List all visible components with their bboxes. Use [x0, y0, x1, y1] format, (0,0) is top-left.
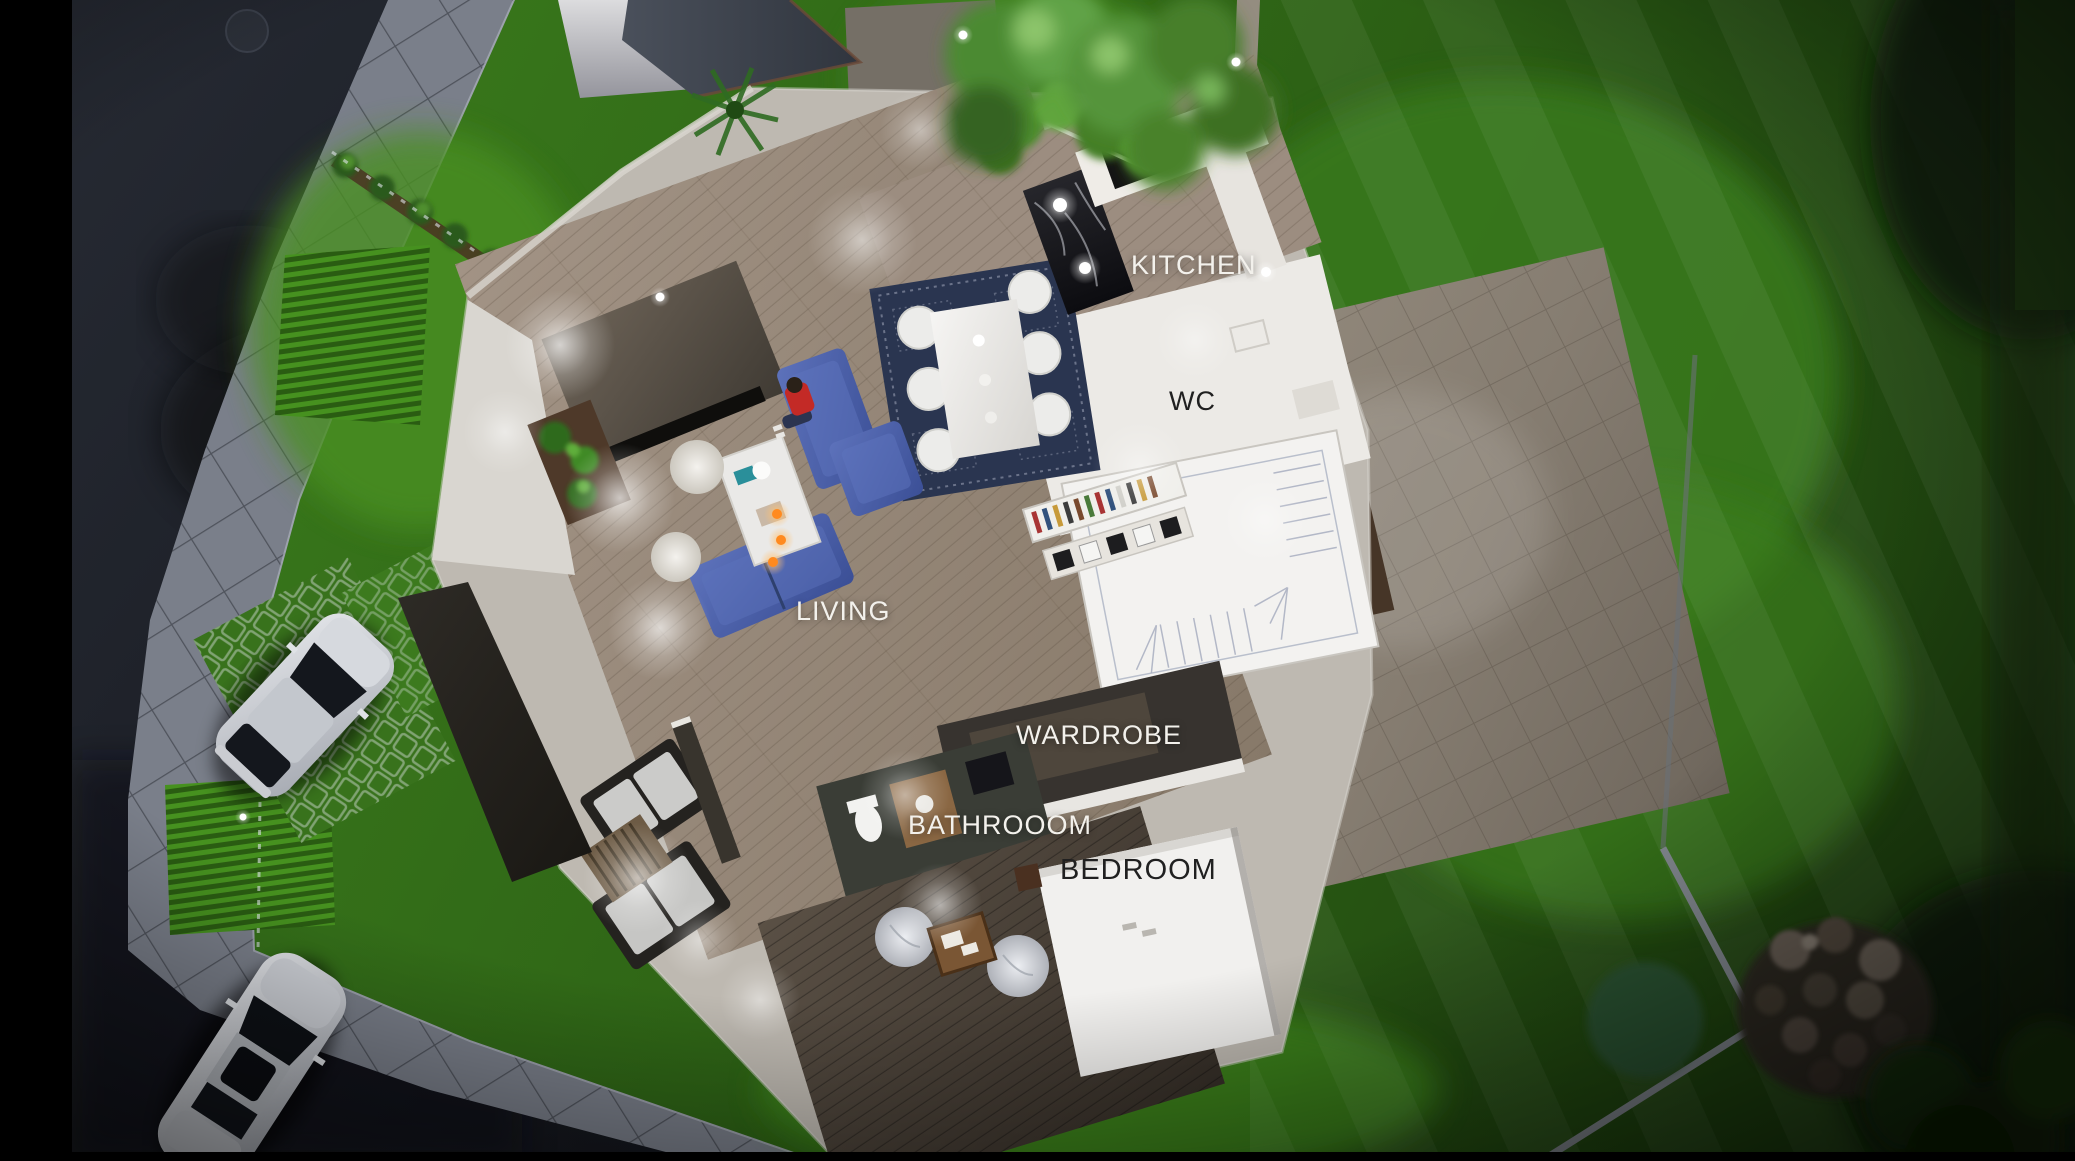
room-label-bedroom: BEDROOM	[1060, 854, 1217, 887]
room-label-bathroom: BATHROOOM	[908, 810, 1092, 841]
room-label-wc: WC	[1169, 386, 1216, 417]
left-black-bar	[0, 0, 72, 1161]
vignette	[0, 0, 2075, 1161]
bottom-black-bar	[0, 1152, 2075, 1161]
room-label-kitchen: KITCHEN	[1131, 250, 1257, 281]
floorplan-night-render: KITCHEN WC LIVING WARDROBE BATHROOOM BED…	[0, 0, 2075, 1161]
room-label-living: LIVING	[796, 596, 891, 627]
room-label-wardrobe: WARDROBE	[1016, 720, 1182, 751]
